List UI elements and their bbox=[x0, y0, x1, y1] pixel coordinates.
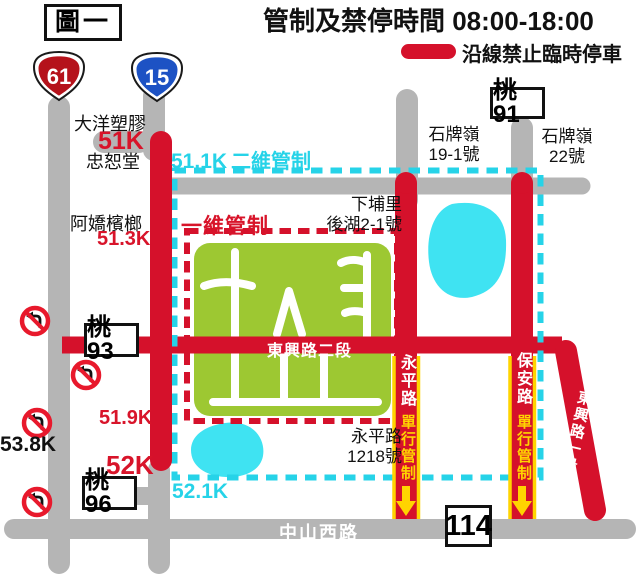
highway-15-shield-icon: 15 bbox=[132, 53, 182, 101]
label-shipai-19-line2: 19-1號 bbox=[422, 145, 486, 165]
label-xiapu: 下埔里 後湖2-1號 bbox=[320, 195, 402, 235]
no-turn-icon-1 bbox=[22, 308, 48, 334]
label-xiapu-line2: 後湖2-1號 bbox=[320, 215, 402, 235]
label-shipai-19-line1: 石牌嶺 bbox=[422, 125, 486, 145]
legend-label: 沿線禁止臨時停車 bbox=[462, 38, 622, 67]
shield-15-number: 15 bbox=[145, 65, 169, 90]
milepost-52k: 52K bbox=[106, 450, 154, 481]
no-turn-icon-2 bbox=[73, 362, 99, 388]
expressway-61-shield-icon: 61 bbox=[34, 52, 84, 100]
page-title: 管制及禁停時間 08:00-18:00 bbox=[263, 1, 594, 38]
road-shipailing-endcap bbox=[574, 178, 591, 195]
label-xiapu-line1: 下埔里 bbox=[320, 195, 402, 215]
figure-label-box: 圖一 bbox=[44, 4, 122, 41]
route-box-tao93: 桃93 bbox=[84, 323, 139, 357]
route-box-114: 114 bbox=[445, 505, 492, 547]
road-label-yongping: 永平路 bbox=[395, 354, 418, 408]
road-yongping-topcap bbox=[395, 172, 417, 194]
pond-lower bbox=[191, 422, 263, 477]
road-baoan-topcap bbox=[511, 172, 533, 194]
label-yongping-1218-line1: 永平路 bbox=[320, 427, 402, 447]
label-shipai-22-line1: 石牌嶺 bbox=[535, 127, 599, 147]
road-label-dongxing-sec2: 東興路二段 bbox=[267, 337, 352, 361]
controlled-block bbox=[194, 243, 391, 416]
label-shipai-22: 石牌嶺 22號 bbox=[535, 127, 599, 167]
zone-one-dim-text: 一維管制 bbox=[181, 210, 269, 240]
legend-red-bar-icon bbox=[401, 44, 456, 59]
no-turn-icon-4 bbox=[24, 489, 50, 515]
zone-two-dim-text: 二維管制 bbox=[231, 151, 311, 173]
shield-61-number: 61 bbox=[47, 64, 71, 89]
label-shipai-22-line2: 22號 bbox=[535, 147, 599, 167]
label-yongping-1218: 永平路 1218號 bbox=[320, 427, 402, 467]
label-yongping-1218-line2: 1218號 bbox=[320, 447, 402, 467]
label-zhongshu: 忠恕堂 bbox=[86, 148, 140, 174]
milepost-51-1k: 51.1K bbox=[171, 150, 227, 173]
milepost-51-9k: 51.9K bbox=[99, 407, 152, 430]
milepost-51-3k: 51.3K bbox=[97, 228, 150, 251]
pond-upper bbox=[428, 203, 506, 298]
milepost-53-8k: 53.8K bbox=[0, 433, 56, 457]
milepost-52-1k: 52.1K bbox=[172, 480, 228, 504]
oneway-control-label-yongping: 單行管制 bbox=[395, 414, 418, 482]
route-box-tao91: 桃91 bbox=[490, 87, 545, 119]
label-shipai-19: 石牌嶺 19-1號 bbox=[422, 125, 486, 165]
label-two-dim-control: 51.1K二維管制 bbox=[171, 145, 311, 174]
road-label-baoan: 保安路 bbox=[511, 352, 534, 406]
oneway-control-label-baoan: 單行管制 bbox=[511, 414, 534, 482]
route-box-tao96: 桃96 bbox=[82, 476, 137, 510]
road-label-zhongshan: 中山西路 bbox=[279, 519, 359, 545]
